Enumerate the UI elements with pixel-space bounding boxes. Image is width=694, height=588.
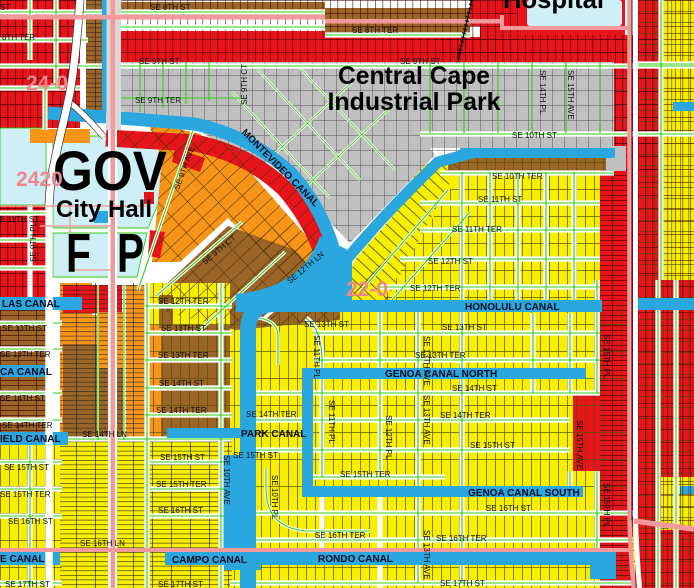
svg-text:Hospital: Hospital bbox=[503, 0, 604, 14]
svg-text:SE 14TH TER: SE 14TH TER bbox=[156, 406, 207, 415]
svg-text:SE 8TH TER: SE 8TH TER bbox=[352, 26, 398, 35]
svg-text:SE 14TH ST: SE 14TH ST bbox=[0, 394, 45, 403]
svg-text:SE 16TH ST: SE 16TH ST bbox=[486, 504, 531, 513]
svg-text:F: F bbox=[66, 222, 91, 284]
svg-text:SE 9TH PL: SE 9TH PL bbox=[29, 221, 38, 262]
svg-text:SE 11TH TER: SE 11TH TER bbox=[452, 225, 502, 234]
svg-text:CAMPO CANAL: CAMPO CANAL bbox=[172, 555, 247, 566]
svg-text:SE 16TH TER: SE 16TH TER bbox=[315, 531, 366, 540]
svg-text:SE 17TH ST: SE 17TH ST bbox=[440, 579, 485, 588]
svg-text:SE 13TH ST: SE 13TH ST bbox=[442, 323, 487, 332]
svg-text:SE 9TH CT: SE 9TH CT bbox=[240, 64, 249, 105]
svg-text:SE 13TH ST: SE 13TH ST bbox=[161, 324, 206, 333]
svg-text:SE 13TH AVE: SE 13TH AVE bbox=[422, 336, 431, 386]
svg-text:SE 9TH TER: SE 9TH TER bbox=[135, 96, 181, 105]
svg-text:SE 10TH TER: SE 10TH TER bbox=[492, 172, 543, 181]
svg-text:SE 15TH ST: SE 15TH ST bbox=[470, 441, 515, 450]
svg-text:SE 14TH ST: SE 14TH ST bbox=[159, 379, 204, 388]
svg-text:SE 14TH TER: SE 14TH TER bbox=[246, 410, 297, 419]
svg-text:GENOA CANAL SOUTH: GENOA CANAL SOUTH bbox=[468, 488, 580, 499]
svg-text:22-0: 22-0 bbox=[346, 278, 388, 301]
svg-text:SE 15TH ST: SE 15TH ST bbox=[233, 451, 278, 460]
svg-text:SE 10TH ST: SE 10TH ST bbox=[512, 131, 557, 140]
svg-text:SE 13TH AVE: SE 13TH AVE bbox=[422, 530, 431, 580]
svg-text:SE 16TH ST: SE 16TH ST bbox=[158, 506, 203, 515]
svg-text:Central Cape: Central Cape bbox=[338, 62, 490, 90]
svg-text:P: P bbox=[117, 222, 144, 284]
svg-text:SE 15TH TER: SE 15TH TER bbox=[340, 470, 391, 479]
svg-text:SE 15TH PL: SE 15TH PL bbox=[602, 334, 611, 379]
svg-text:CA CANAL: CA CANAL bbox=[0, 367, 52, 378]
svg-text:Industrial Park: Industrial Park bbox=[328, 88, 501, 116]
svg-text:SE 11TH ST: SE 11TH ST bbox=[478, 195, 522, 204]
svg-text:GOV: GOV bbox=[53, 139, 167, 202]
svg-text:SE 14TH ST: SE 14TH ST bbox=[452, 384, 497, 393]
svg-text:SE 13TH ST: SE 13TH ST bbox=[304, 320, 349, 329]
svg-text:GENOA CANAL NORTH: GENOA CANAL NORTH bbox=[385, 369, 497, 380]
svg-text:SE 10TH AVE: SE 10TH AVE bbox=[222, 455, 231, 505]
svg-text:SE 14TH TER: SE 14TH TER bbox=[2, 421, 53, 430]
svg-text:SE 15TH TER: SE 15TH TER bbox=[0, 490, 51, 499]
svg-text:SE 15TH PL: SE 15TH PL bbox=[602, 483, 611, 528]
svg-text:SE 12TH TER: SE 12TH TER bbox=[410, 284, 461, 293]
svg-text:SE 16TH ST: SE 16TH ST bbox=[8, 517, 53, 526]
svg-text:SE 13TH TER: SE 13TH TER bbox=[158, 351, 209, 360]
svg-text:SE 15TH ST: SE 15TH ST bbox=[160, 453, 205, 462]
svg-text:PARK CANAL: PARK CANAL bbox=[241, 429, 306, 440]
svg-text:SE 15TH ST: SE 15TH ST bbox=[4, 463, 49, 472]
svg-text:SE 16TH LN: SE 16TH LN bbox=[80, 539, 125, 548]
svg-text:SE 13TH ST: SE 13TH ST bbox=[2, 324, 47, 333]
svg-text:HONOLULU CANAL: HONOLULU CANAL bbox=[465, 302, 559, 313]
svg-text:SE 11TH PL: SE 11TH PL bbox=[327, 400, 336, 444]
svg-text:SE 12TH TER: SE 12TH TER bbox=[158, 297, 209, 306]
svg-text:RONDO CANAL: RONDO CANAL bbox=[318, 554, 393, 565]
svg-text:SE 14TH PL: SE 14TH PL bbox=[538, 70, 547, 115]
svg-text:SE 11TH PL: SE 11TH PL bbox=[312, 335, 321, 379]
svg-text:24-0: 24-0 bbox=[26, 72, 68, 95]
svg-text:SE 17TH ST: SE 17TH ST bbox=[158, 580, 203, 588]
svg-text:SE 12TH ST: SE 12TH ST bbox=[428, 257, 473, 266]
svg-text:SE 13TH AVE: SE 13TH AVE bbox=[422, 395, 431, 445]
svg-text:SE 15TH TER: SE 15TH TER bbox=[156, 480, 207, 489]
svg-text:SE 15TH AVE: SE 15TH AVE bbox=[566, 70, 575, 120]
svg-text:E CANAL: E CANAL bbox=[0, 554, 44, 565]
svg-text:IELD CANAL: IELD CANAL bbox=[0, 434, 61, 445]
svg-text:SE 14TH LN: SE 14TH LN bbox=[82, 430, 127, 439]
svg-text:SE 17TH ST: SE 17TH ST bbox=[5, 580, 50, 588]
svg-text:SE 8TH ST: SE 8TH ST bbox=[150, 3, 191, 12]
svg-text:SE 16TH TER: SE 16TH TER bbox=[436, 534, 487, 543]
svg-text:SE 10TH PL: SE 10TH PL bbox=[270, 475, 279, 520]
svg-text:SE 9TH ST: SE 9TH ST bbox=[139, 57, 180, 66]
svg-text:SE 12TH PL: SE 12TH PL bbox=[384, 415, 393, 460]
svg-text:City Hall: City Hall bbox=[56, 196, 152, 223]
svg-text:SE 13TH TER: SE 13TH TER bbox=[0, 350, 51, 359]
svg-text:SE 15TH AVE: SE 15TH AVE bbox=[575, 420, 584, 470]
svg-text:LAS CANAL: LAS CANAL bbox=[2, 299, 60, 310]
svg-text:8TH TER: 8TH TER bbox=[2, 33, 35, 42]
svg-text:ST: ST bbox=[0, 3, 10, 12]
svg-text:2420: 2420 bbox=[16, 168, 63, 191]
svg-text:SE 14TH TER: SE 14TH TER bbox=[440, 411, 491, 420]
